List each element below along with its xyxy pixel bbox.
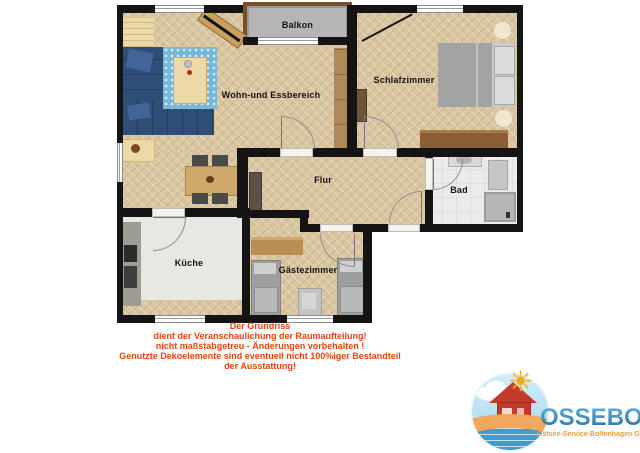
- door-opening-kitchen: [152, 208, 185, 217]
- wall-segment: [237, 210, 309, 218]
- room-label-bad: Bad: [429, 185, 489, 195]
- bed-pillow: [494, 76, 515, 105]
- room-label-schlafzimmer: Schlafzimmer: [344, 75, 464, 85]
- guest-bed-blanket: [254, 287, 278, 313]
- wall-segment: [517, 5, 523, 232]
- bathroom-cabinet: [488, 160, 508, 190]
- wall-segment-balcony-left: [243, 37, 258, 45]
- room-label-flur: Flur: [283, 175, 363, 185]
- bedside-lamp: [495, 110, 512, 127]
- dining-chair: [212, 155, 228, 166]
- guest-bed-blanket: [340, 286, 364, 313]
- kitchen-counter: [121, 222, 141, 306]
- disclaimer-text: Der Grundriss dient der Veranschaulichun…: [60, 321, 460, 371]
- door-opening-guestroom: [320, 224, 353, 232]
- sofa-pillow: [127, 103, 151, 121]
- dining-chair: [192, 155, 208, 166]
- wall-segment: [363, 224, 372, 323]
- company-tagline: Ostsee-Service-Boltenhagen GmbH: [537, 431, 640, 438]
- side-table-basket: [131, 144, 140, 153]
- wall-segment: [242, 208, 250, 323]
- dining-table-decor: [206, 176, 214, 183]
- stove: [124, 245, 137, 262]
- dining-chair: [192, 193, 208, 204]
- bedroom-sideboard: [420, 130, 508, 148]
- bed-pillow: [494, 46, 515, 75]
- window: [155, 5, 204, 13]
- guest-armchair-seat: [302, 293, 316, 309]
- room-label-wohn: Wohn-und Essbereich: [191, 90, 351, 100]
- table-decor-bowl: [184, 60, 192, 68]
- disclaimer-line: Der Grundriss: [60, 321, 460, 331]
- table-decor-red: [187, 70, 192, 75]
- shower-head-icon: [506, 212, 510, 218]
- room-label-kueche: Küche: [149, 258, 229, 268]
- door-opening-bedroom: [363, 148, 397, 157]
- door-opening-entrance: [388, 224, 420, 232]
- guest-desk: [251, 237, 303, 255]
- room-label-gaestezimmer: Gästezimmer: [258, 265, 358, 275]
- hall-cabinet: [249, 172, 262, 213]
- company-name: OSSEBO: [540, 404, 640, 432]
- floor-plan-canvas: Balkon: [0, 0, 640, 453]
- disclaimer-line: nicht maßstabgetreu - Änderungen vorbeha…: [60, 341, 460, 351]
- balcony-door-window: [258, 37, 318, 45]
- bedside-lamp: [494, 22, 511, 39]
- disclaimer-line: Genutzte Dekoelemente sind eventuell nic…: [60, 351, 460, 361]
- shower: [484, 192, 516, 222]
- room-label-balkon: Balkon: [247, 20, 348, 30]
- shelf-cabinet: [121, 18, 154, 47]
- guest-armchair: [298, 288, 322, 317]
- window: [417, 5, 463, 13]
- window: [117, 143, 123, 182]
- kitchen-appliance: [124, 266, 137, 288]
- disclaimer-line: dient der Veranschaulichung der Raumauft…: [60, 331, 460, 341]
- door-opening-living: [280, 148, 313, 157]
- sun-icon: ☀: [508, 368, 533, 396]
- wall-segment-balcony-right: [318, 37, 352, 45]
- dining-chair: [212, 193, 228, 204]
- disclaimer-line: der Ausstattung!: [60, 361, 460, 371]
